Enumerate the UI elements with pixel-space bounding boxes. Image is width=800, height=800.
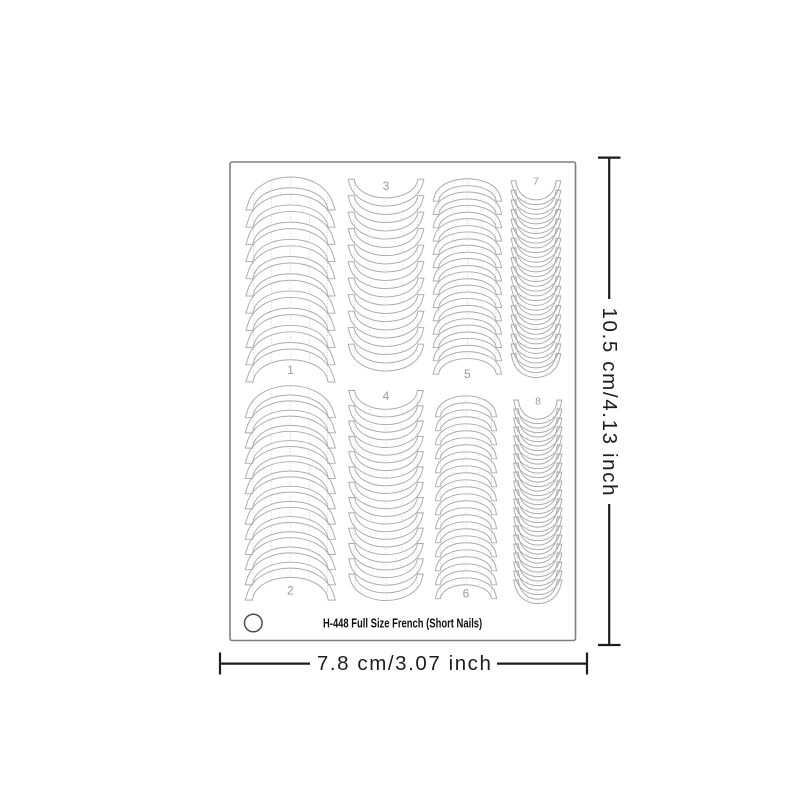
svg-text:8: 8 <box>535 396 541 408</box>
svg-text:7: 7 <box>533 176 539 188</box>
svg-text:5: 5 <box>464 367 471 381</box>
svg-text:6: 6 <box>463 587 470 601</box>
svg-text:3: 3 <box>383 179 390 193</box>
svg-text:7.8 cm/3.07 inch: 7.8 cm/3.07 inch <box>317 652 491 675</box>
svg-text:10.5 cm/4.13 inch: 10.5 cm/4.13 inch <box>598 308 621 496</box>
svg-text:2: 2 <box>287 584 294 598</box>
svg-text:H-448 Full Size French (Short: H-448 Full Size French (Short Nails) <box>323 616 482 631</box>
svg-text:4: 4 <box>383 389 390 403</box>
svg-text:1: 1 <box>287 363 294 377</box>
